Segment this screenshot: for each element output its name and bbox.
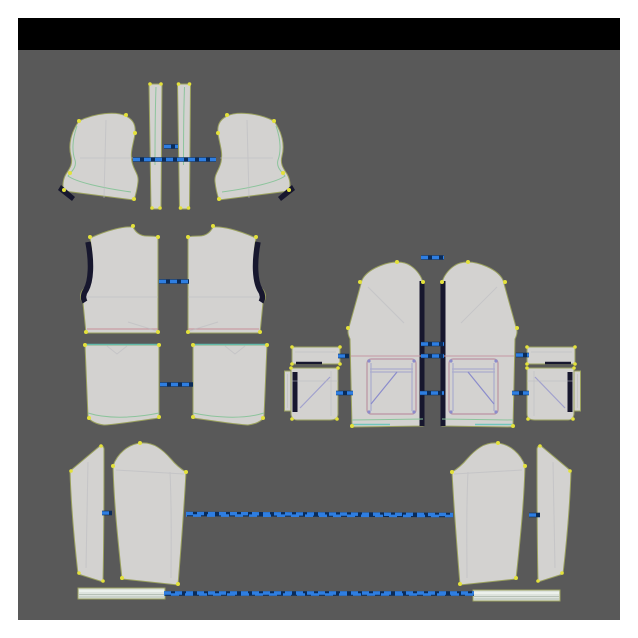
piece-pocket-side-strip-left[interactable] bbox=[285, 371, 292, 411]
seam-connector-sleeve-row[interactable] bbox=[186, 514, 453, 517]
app-screenshot bbox=[0, 0, 638, 638]
piece-pocket-flap-right[interactable] bbox=[525, 345, 577, 366]
piece-pocket-bag-right[interactable] bbox=[525, 366, 576, 421]
piece-pocket-side-strip-right[interactable] bbox=[574, 371, 581, 411]
piece-hood-center-strip-2[interactable] bbox=[177, 82, 192, 210]
piece-back-lower-left[interactable] bbox=[83, 343, 161, 425]
piece-pocket-flap-left[interactable] bbox=[290, 345, 342, 366]
piece-back-upper-right[interactable] bbox=[186, 224, 265, 334]
piece-cuff-left[interactable] bbox=[78, 588, 165, 599]
piece-back-upper-left[interactable] bbox=[81, 224, 160, 334]
piece-back-lower-right[interactable] bbox=[191, 343, 269, 425]
seam-connector-cuff-row[interactable] bbox=[164, 593, 474, 595]
piece-hood-center-strip-1[interactable] bbox=[148, 82, 163, 210]
piece-cuff-right[interactable] bbox=[473, 590, 560, 601]
top-black-bar bbox=[18, 18, 620, 50]
piece-pocket-bag-left[interactable] bbox=[289, 366, 340, 421]
pattern-2d-canvas[interactable] bbox=[0, 0, 638, 638]
